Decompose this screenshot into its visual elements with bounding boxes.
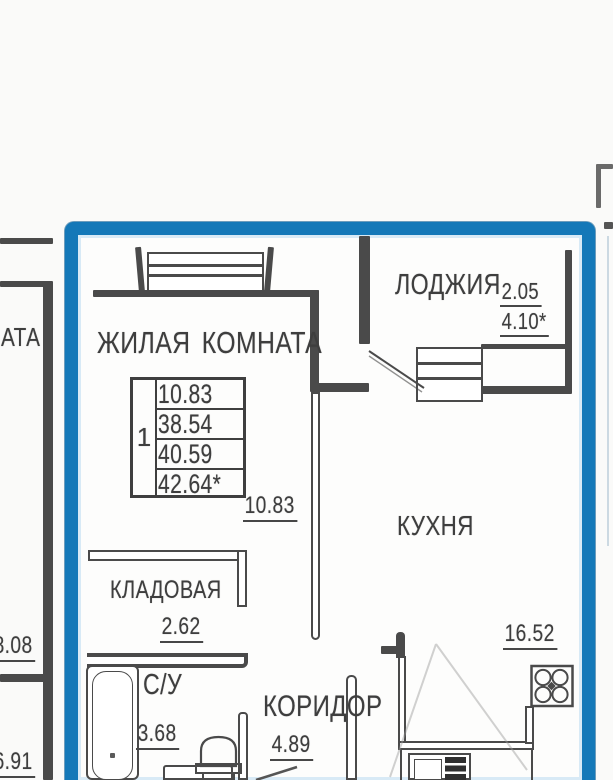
- neighbor-left-dim-bottom: 6.91: [0, 750, 46, 778]
- neighbor-right-bracket-horizontal: [598, 164, 613, 169]
- label-bathroom: С/У: [143, 671, 192, 700]
- bathtub-inner: [92, 671, 133, 780]
- wall-kitchen-top: [310, 383, 369, 392]
- neighbor-right-faint-edge: [607, 236, 609, 546]
- area-table-unit-number: 1: [133, 380, 157, 495]
- dim-storage: 2.62: [160, 615, 214, 643]
- balcony-window: [416, 347, 483, 402]
- dim-loggia-area: 4.10*: [500, 310, 561, 337]
- kitchen-counter-bottom: [398, 741, 534, 750]
- kitchen-counter-right: [525, 706, 534, 744]
- area-table-row: 10.83: [157, 380, 243, 410]
- label-living-room: ЖИЛАЯ КОМНАТА: [97, 327, 378, 358]
- area-table-row: 42.64*: [157, 470, 243, 498]
- neighbor-left-room-label: АТА: [1, 324, 50, 350]
- dim-corridor: 4.89: [270, 733, 324, 761]
- balcony-window-glazing-line: [418, 377, 481, 380]
- dim-kitchen: 16.52: [503, 622, 571, 650]
- dim-living-room: 10.83: [243, 494, 311, 522]
- area-table-values: 10.83 38.54 40.59 42.64*: [157, 380, 243, 495]
- kitchen-sink-basin: [414, 759, 442, 780]
- dim-bathroom: 3.68: [136, 722, 190, 750]
- wall-loggia-bottom-upper-line: [481, 344, 567, 349]
- bathtub-drain: [110, 753, 115, 758]
- dim-loggia-width: 2.05: [500, 280, 552, 307]
- area-table: 1 10.83 38.54 40.59 42.64*: [130, 377, 246, 498]
- neighbor-left-wall-top-2: [0, 281, 47, 287]
- neighbor-left-dim-top: 8.08: [0, 634, 46, 662]
- kitchen-door-jamb-horizontal: [381, 646, 399, 654]
- balcony-window-glazing-line: [418, 362, 481, 365]
- neighbor-right-bracket-vertical: [596, 164, 601, 208]
- wall-loggia-right: [565, 250, 572, 393]
- neighbor-left-wall-mid: [0, 674, 47, 682]
- label-kitchen: КУХНЯ: [397, 512, 493, 540]
- area-table-row: 40.59: [157, 440, 243, 470]
- floor-plan-screenshot: АТА 8.08 6.91: [0, 0, 613, 780]
- kitchen-door-jamb-vertical: [396, 632, 405, 658]
- neighbor-right-dash: [604, 222, 613, 229]
- washbasin: [163, 765, 233, 780]
- kitchen-appliance-rack: [445, 757, 466, 780]
- wall-bathroom-right: [238, 712, 248, 780]
- label-storage: КЛАДОВАЯ: [110, 578, 249, 603]
- living-room-window: [147, 252, 264, 292]
- wall-living-right-long: [311, 392, 320, 640]
- wall-loggia-bottom: [481, 386, 572, 394]
- neighbor-left-wall-top-1: [0, 238, 53, 244]
- area-table-row: 38.54: [157, 410, 243, 440]
- label-corridor: КОРИДОР: [263, 692, 412, 722]
- window-glazing-line: [149, 264, 262, 267]
- wall-storage-top: [88, 550, 247, 561]
- neighbor-left-wall-vertical: [43, 281, 53, 780]
- window-glazing-line: [149, 274, 262, 277]
